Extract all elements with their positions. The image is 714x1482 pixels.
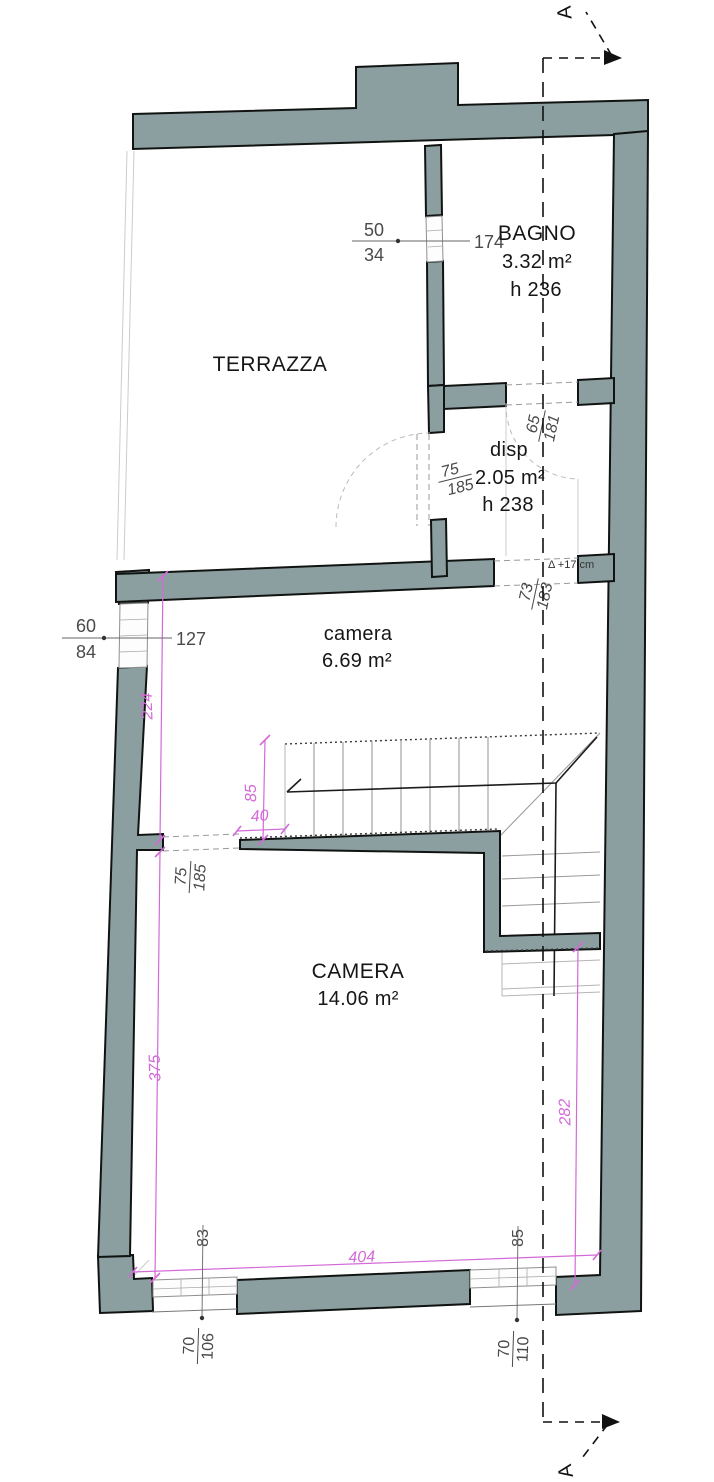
disp-door xyxy=(506,382,578,479)
dim-85: 85 xyxy=(243,784,261,802)
terrazza-door xyxy=(336,433,430,527)
disp-door-height: 181 xyxy=(541,413,563,443)
camera-door-label: 73 183 xyxy=(515,575,557,614)
bottom-left-window-height: 106 xyxy=(200,1333,218,1360)
room-passage-width: 75 xyxy=(173,867,191,886)
floor-plan-sheet: 224 85 40 375 282 404 50 34 174 60 84 12… xyxy=(0,0,714,1482)
section-arrow-bottom xyxy=(602,1414,620,1429)
camera-window-sill: 84 xyxy=(76,642,96,662)
camera-big-name: CAMERA xyxy=(312,960,405,983)
bagno-name: BAGNO xyxy=(498,222,576,245)
terrazza-label: TERRAZZA xyxy=(213,353,328,376)
disp-height: h 238 xyxy=(482,494,534,516)
camera-small-name: camera xyxy=(324,623,393,645)
room-passage-label: 75 185 xyxy=(172,860,210,894)
staircase xyxy=(285,733,600,996)
wall-left-lower xyxy=(98,666,163,1257)
bottom-left-window-width: 70 xyxy=(181,1336,199,1354)
stair-treads-upper xyxy=(314,737,488,837)
bagno-window xyxy=(426,216,443,262)
dim-404: 404 xyxy=(348,1248,376,1266)
bottom-right-window-height: 110 xyxy=(515,1336,533,1362)
section-label-top: A xyxy=(553,4,576,20)
camera-window-offset: 127 xyxy=(176,629,206,649)
section-label-bottom: A xyxy=(554,1462,578,1480)
camera-window-width: 60 xyxy=(76,616,96,636)
partition-disp-left-lower xyxy=(431,519,447,577)
dim-224-line xyxy=(155,571,168,845)
stair-treads-right xyxy=(502,852,600,996)
wall-stair-surround xyxy=(240,831,600,952)
dim-224: 224 xyxy=(139,692,157,720)
bagno-window-width: 50 xyxy=(364,220,384,240)
wall-right xyxy=(556,131,648,1315)
partition-bagno-upper xyxy=(425,145,442,216)
camera-door-height: 183 xyxy=(534,581,556,611)
camera-window xyxy=(119,603,148,668)
windows xyxy=(119,216,556,1312)
wall-bottom-left-corner xyxy=(98,1255,153,1313)
bagno-height: h 236 xyxy=(510,279,562,301)
room-passage-height: 185 xyxy=(191,864,209,892)
camera-big-area: 14.06 m² xyxy=(317,988,398,1010)
room-labels: TERRAZZA BAGNO 3.32 m² h 236 disp 2.05 m… xyxy=(213,222,595,1010)
level-note: Δ +17 cm xyxy=(548,559,594,571)
dim-40-line xyxy=(233,824,289,836)
section-arrow-top xyxy=(604,50,622,65)
bottom-right-window-offset: 85 xyxy=(510,1229,527,1247)
terrazza-door-label: 75 185 xyxy=(434,458,476,501)
bottom-right-window-width: 70 xyxy=(496,1339,514,1357)
room-passage-opening xyxy=(163,834,240,851)
disp-name: disp xyxy=(490,439,528,461)
dim-282: 282 xyxy=(557,1098,575,1126)
bottom-left-window xyxy=(152,1277,237,1312)
dim-40: 40 xyxy=(250,807,269,825)
partition-disp-left-upper xyxy=(428,385,444,433)
magenta-dimension-lines xyxy=(129,571,601,1290)
bagno-area: 3.32 m² xyxy=(502,251,572,273)
camera-big-label: CAMERA 14.06 m² xyxy=(312,960,405,1010)
stair-walk-line xyxy=(287,737,597,996)
bagno-window-sill: 34 xyxy=(364,245,384,265)
dim-375: 375 xyxy=(147,1054,165,1081)
bagno-label: BAGNO 3.32 m² h 236 xyxy=(498,222,576,301)
wall-disp-top-right-block xyxy=(578,378,614,405)
partition-bagno-lower xyxy=(427,261,444,386)
disp-label: disp 2.05 m² h 238 xyxy=(475,439,545,516)
wall-bottom-center xyxy=(237,1270,470,1314)
disp-area: 2.05 m² xyxy=(475,467,545,489)
camera-small-label: camera 6.69 m² xyxy=(322,623,393,672)
camera-small-area: 6.69 m² xyxy=(322,650,392,672)
floor-plan-svg: 224 85 40 375 282 404 50 34 174 60 84 12… xyxy=(0,0,714,1482)
bottom-left-window-offset: 83 xyxy=(195,1229,212,1247)
wall-top-with-chimney xyxy=(133,63,648,149)
bottom-right-window-label: 85 70 110 xyxy=(495,1226,532,1368)
wall-disp-top xyxy=(444,383,506,409)
construction-lines xyxy=(101,151,578,1310)
